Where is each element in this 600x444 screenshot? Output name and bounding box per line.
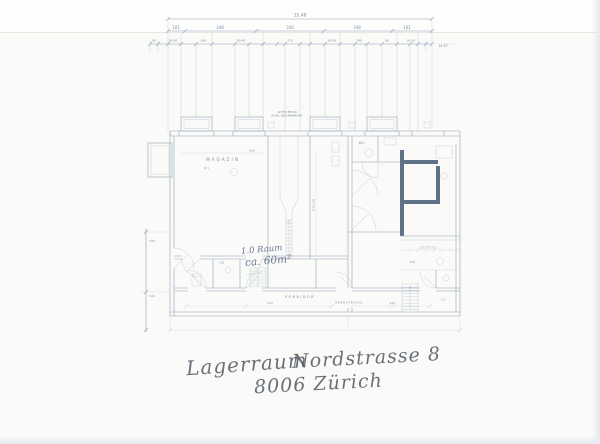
dim-inner-width: 6.42: [249, 149, 255, 153]
room-label-wc: W.C.: [358, 141, 365, 145]
street-label: NORDSTRASSE: [335, 301, 363, 305]
dim-right-total: 14.67: [438, 44, 448, 48]
page-edge-shadow-right: [592, 0, 600, 444]
dimension-chain-top: 15.48 101 348 340 348 101 45 90 90 348 9…: [148, 13, 448, 132]
dim-major: 101: [403, 25, 411, 30]
central-shaft-stair: 8.10 2.45: [268, 136, 339, 259]
room-magazin: MAGAZIN N: 1 6.42: [180, 149, 264, 176]
right-annex: W.C. 17 17 17 17 17 8.51: [348, 136, 460, 270]
interior-divider: [348, 136, 352, 312]
dim-major: 348: [353, 25, 361, 30]
dim-major: 348: [216, 25, 224, 30]
left-margin-dimension: 4.04 4.04: [140, 228, 170, 332]
scanned-floorplan-page: 15.48 101 348 340 348 101 45 90 90 348 9…: [0, 0, 600, 444]
dim-corridor: 2.07: [267, 301, 273, 305]
dim-corridor: 4.07: [389, 301, 395, 305]
dim-minor: 275: [287, 39, 293, 43]
dim-minor: 90 90: [169, 39, 178, 43]
room-label-korridor: KORRIDOR: [285, 295, 315, 299]
corridor: KORRIDOR NORDSTRASSE 2.07 4.07 2 Z: [174, 270, 460, 312]
dim-minor: 45: [152, 39, 156, 43]
dim-major: 101: [172, 25, 180, 30]
dim-minor: 90: [385, 39, 389, 43]
dim-left: 4.04: [149, 294, 155, 298]
dim-minor: 90 90: [237, 39, 246, 43]
shaft-side-note: 8.10 2.45: [312, 198, 316, 211]
dim-annex: 8.51: [410, 261, 416, 264]
wall-note: IN BVL ABSCHRANKUNG: [271, 114, 302, 118]
dim-minor: 90 90: [328, 39, 337, 43]
dim-treads: 17 17 17 17 17: [420, 247, 437, 250]
dim-minor: 348: [200, 39, 206, 43]
dim-total: 15.48: [294, 13, 307, 19]
room-number: N: 1: [204, 167, 209, 170]
dim-minor: 90 45: [407, 39, 416, 43]
dim-strip: 5.61: [219, 262, 225, 265]
top-wall-windows: GITTER BETON IN BVL ABSCHRANKUNG: [170, 110, 460, 136]
wall-note: GITTER BETON: [277, 110, 296, 114]
page-edge-shadow-bottom: [0, 435, 600, 444]
room-label-magazin: MAGAZIN: [206, 157, 240, 162]
dim-left: 4.04: [149, 239, 155, 243]
dim-major: 340: [286, 25, 294, 30]
dim-minor: 348: [356, 39, 362, 43]
room-right-label: 2 Z: [441, 299, 445, 302]
